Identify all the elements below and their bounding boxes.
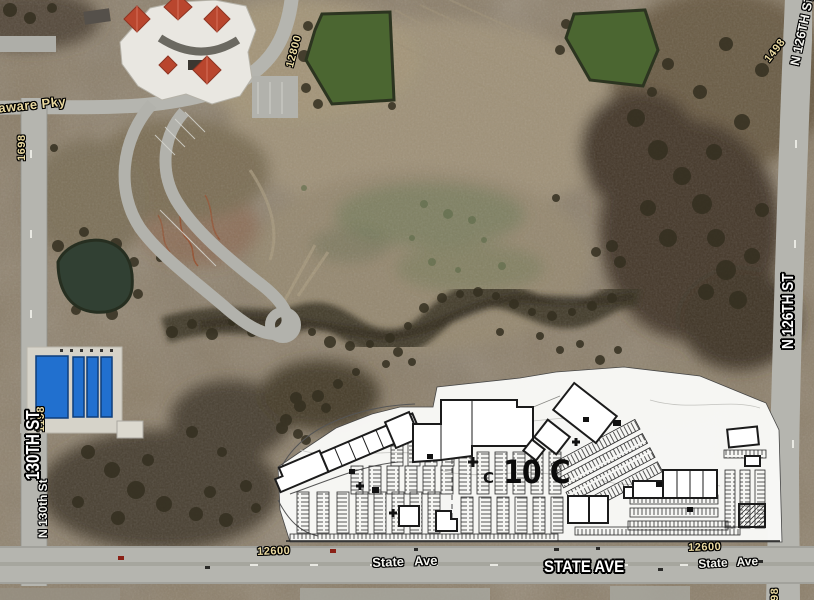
address-label-12600-west: 12600 (257, 546, 290, 558)
address-label-98-partial: 98 (770, 588, 781, 600)
address-label-1698: 1698 (17, 135, 28, 161)
street-label-state-ave-west: State Ave (372, 554, 438, 569)
street-label-state-ave-east: State Ave (698, 555, 758, 570)
site-plan-label-10c: 10 C (503, 457, 570, 489)
red-car (118, 556, 124, 560)
street-label-n-126th-st-big: N 126TH ST (781, 273, 797, 349)
satellite-layer (0, 0, 814, 600)
address-label-12600-east: 12600 (688, 542, 721, 554)
street-label-state-ave-big: STATE AVE (544, 558, 624, 575)
school-east-lot (252, 76, 298, 118)
site-plan-label-c: C (483, 471, 494, 486)
red-car (330, 549, 336, 553)
pond-west (58, 240, 132, 312)
street-label-130th-st-big: 130TH ST (24, 410, 42, 480)
street-label-n-130th-st: N 130th St (37, 479, 49, 538)
aerial-map[interactable]: 1698 1198 12800 1498 12600 12600 98 Dela… (0, 0, 814, 600)
